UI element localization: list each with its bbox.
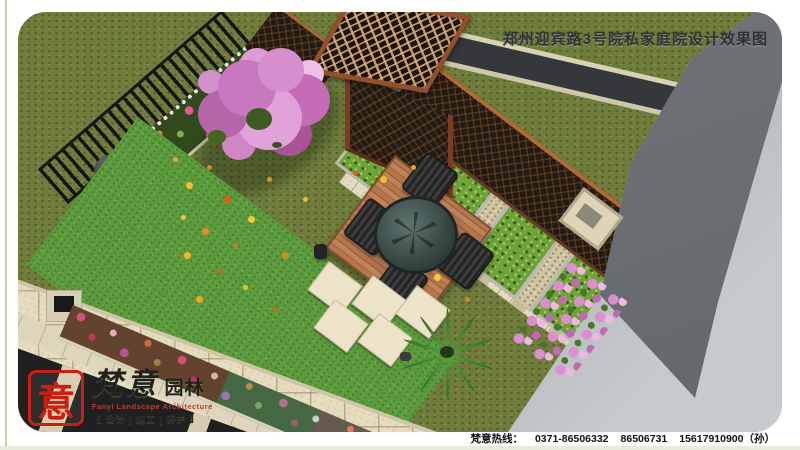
frame-accent-line-left <box>5 0 7 450</box>
grill-object <box>314 244 327 259</box>
brand-name-cn: 梵意 <box>92 368 160 401</box>
autumn-leaves <box>173 157 178 162</box>
hotline-phone-1: 0371-86506332 <box>535 433 609 445</box>
brand-english: Fanyi Landscape Architecture <box>92 402 213 411</box>
brand-name: 梵意 园林 <box>92 370 213 400</box>
hotline-phone-2: 86506731 <box>621 433 668 445</box>
hotline-phone-3: 15617910900（孙） <box>679 433 775 445</box>
render-canvas: 郑州迎宾路3号院私家庭院设计效果图 意 梵意 园林 Fanyi Landscap… <box>18 12 782 432</box>
crape-myrtle-tree <box>258 48 304 92</box>
hotline: 梵意热线：0371-865063328650673115617910900（孙） <box>470 431 775 446</box>
logo-text-block: 梵意 园林 Fanyi Landscape Architecture 【 设计 … <box>92 370 213 425</box>
title-overlay: 郑州迎宾路3号院私家庭院设计效果图 <box>503 28 768 49</box>
garden-spotlight <box>400 352 411 361</box>
logo-seal-character: 意 <box>37 369 75 427</box>
page-background: { "title": { "text": "郑州迎宾路3号院私家庭院设计效果图"… <box>0 0 800 450</box>
frame-accent-strip-bottom <box>0 446 800 450</box>
hotline-label: 梵意热线： <box>470 433 523 445</box>
tree-foliage-gap <box>246 108 272 130</box>
brand-services: 【 设计 | 施工 | 养护 】 <box>92 412 213 425</box>
cycad-plant <box>426 330 470 374</box>
cycad-leaf <box>446 354 449 400</box>
brand-name-suffix: 园林 <box>164 378 204 399</box>
logo: 意 梵意 园林 Fanyi Landscape Architecture 【 设… <box>28 370 213 426</box>
logo-seal: 意 <box>28 370 84 426</box>
cycad-core <box>440 346 454 358</box>
table-frame-cross <box>390 212 438 254</box>
